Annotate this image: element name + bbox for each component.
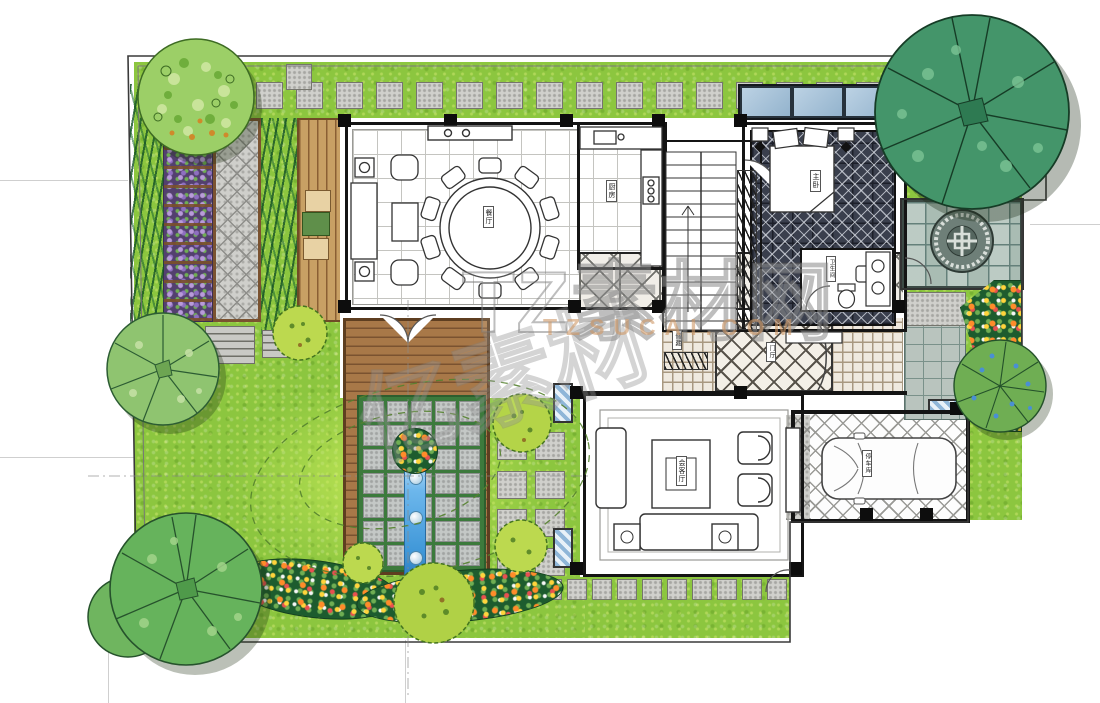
column [860, 508, 873, 521]
path-slab [904, 292, 966, 326]
column [950, 402, 963, 415]
deck-table [305, 190, 331, 212]
column [560, 114, 573, 127]
living-room-walls [583, 393, 804, 577]
ref-line [0, 180, 128, 181]
column [734, 386, 747, 399]
room-label-parking: 停车库 [862, 450, 872, 477]
room-label-dining: 餐厅 [483, 206, 494, 228]
garden-steps [262, 330, 296, 358]
column [338, 114, 351, 127]
bamboo-screen [130, 84, 164, 346]
room-label-bedroom: 主卧 [810, 170, 821, 192]
column [652, 114, 665, 127]
deck-cushion [302, 212, 330, 236]
patio-walls [900, 198, 1024, 290]
column [570, 562, 583, 575]
garage-walls [791, 410, 970, 523]
wisteria-pergola-bed [163, 118, 213, 322]
bamboo-screen [261, 118, 297, 334]
column [789, 562, 802, 575]
column [338, 300, 351, 313]
grass-patch [742, 62, 897, 84]
column [920, 508, 933, 521]
room-label-kitchen: 厨房 [606, 180, 617, 202]
column [892, 300, 905, 313]
column [734, 114, 747, 127]
column [892, 114, 905, 127]
column [444, 114, 457, 127]
ref-line [0, 457, 138, 458]
stepping-stone [286, 64, 312, 90]
deck-table [303, 238, 329, 260]
pergola-stone-path [213, 118, 261, 322]
ref-line [1030, 224, 1100, 225]
watermark-url: TZSUCAI.COM [543, 314, 802, 341]
ref-line [405, 640, 406, 703]
site-plan: 餐厅 厨房 主卧 卫生间 储藏 门厅 会客厅 停车库 亿素材 TZ素材网 TZS… [0, 0, 1100, 703]
ref-line [108, 598, 109, 703]
stepping-stone-col-right [921, 72, 947, 192]
room-label-living: 会客厅 [676, 456, 687, 486]
garden-steps [205, 326, 255, 364]
skylight-glass-roof [738, 84, 898, 120]
